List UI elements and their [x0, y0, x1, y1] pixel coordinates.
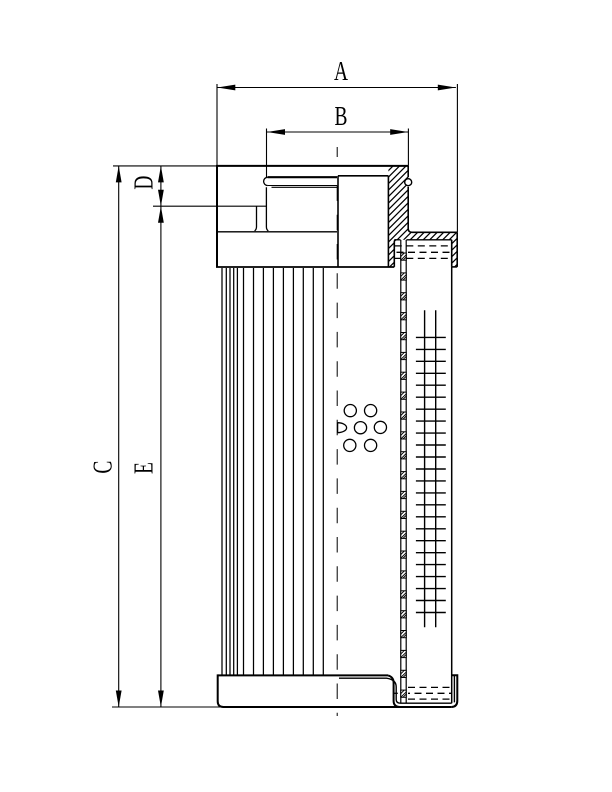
svg-text:B: B — [335, 102, 348, 132]
svg-text:A: A — [334, 57, 348, 87]
svg-text:E: E — [130, 462, 160, 474]
svg-text:C: C — [88, 461, 118, 474]
svg-text:D: D — [130, 176, 160, 190]
